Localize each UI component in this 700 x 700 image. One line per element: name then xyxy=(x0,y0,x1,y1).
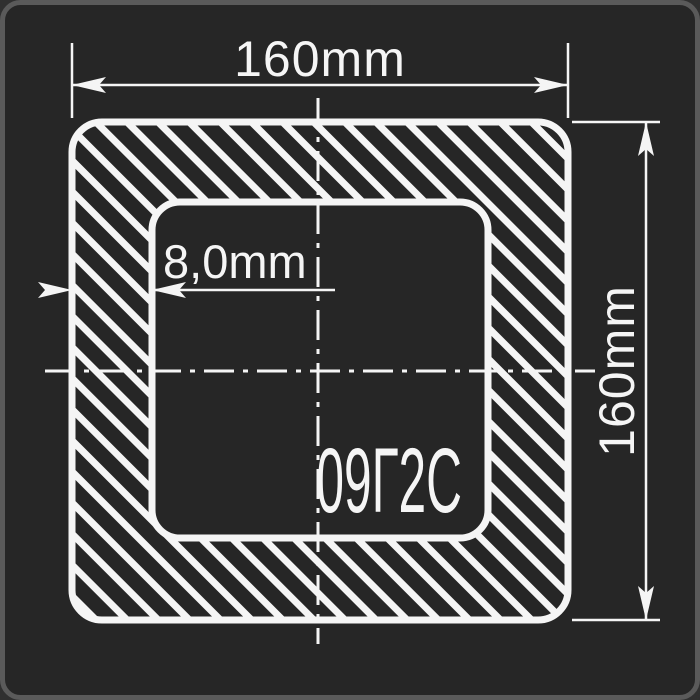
width-dimension-label: 160mm xyxy=(234,31,406,87)
material-grade-label: 09Г2С xyxy=(316,429,462,532)
wall-thickness-label: 8,0mm xyxy=(163,235,307,288)
drawing-canvas: 160mm 160mm 8,0mm 09Г2С xyxy=(0,0,700,700)
cross-section-drawing: 160mm 160mm 8,0mm 09Г2С xyxy=(0,0,700,700)
height-dimension-label: 160mm xyxy=(589,285,645,457)
